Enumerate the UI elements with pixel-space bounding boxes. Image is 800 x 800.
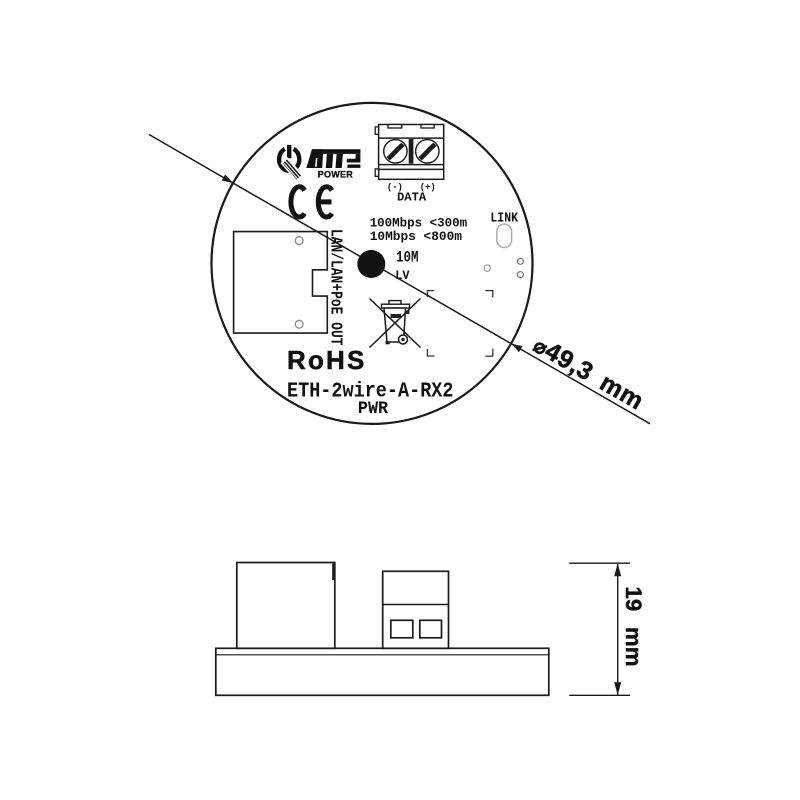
svg-text:10Mbps <800m: 10Mbps <800m (370, 229, 462, 244)
svg-text:DATA: DATA (397, 190, 427, 204)
svg-text:POWER: POWER (318, 170, 354, 180)
svg-text:19 mm: 19 mm (621, 587, 646, 667)
svg-text:LV: LV (395, 268, 410, 283)
svg-text:PWR: PWR (358, 399, 389, 419)
svg-text:LAN/LAN+PoE OUT: LAN/LAN+PoE OUT (327, 229, 346, 346)
svg-text:10M: 10M (396, 249, 419, 267)
svg-text:RoHS: RoHS (287, 345, 367, 375)
